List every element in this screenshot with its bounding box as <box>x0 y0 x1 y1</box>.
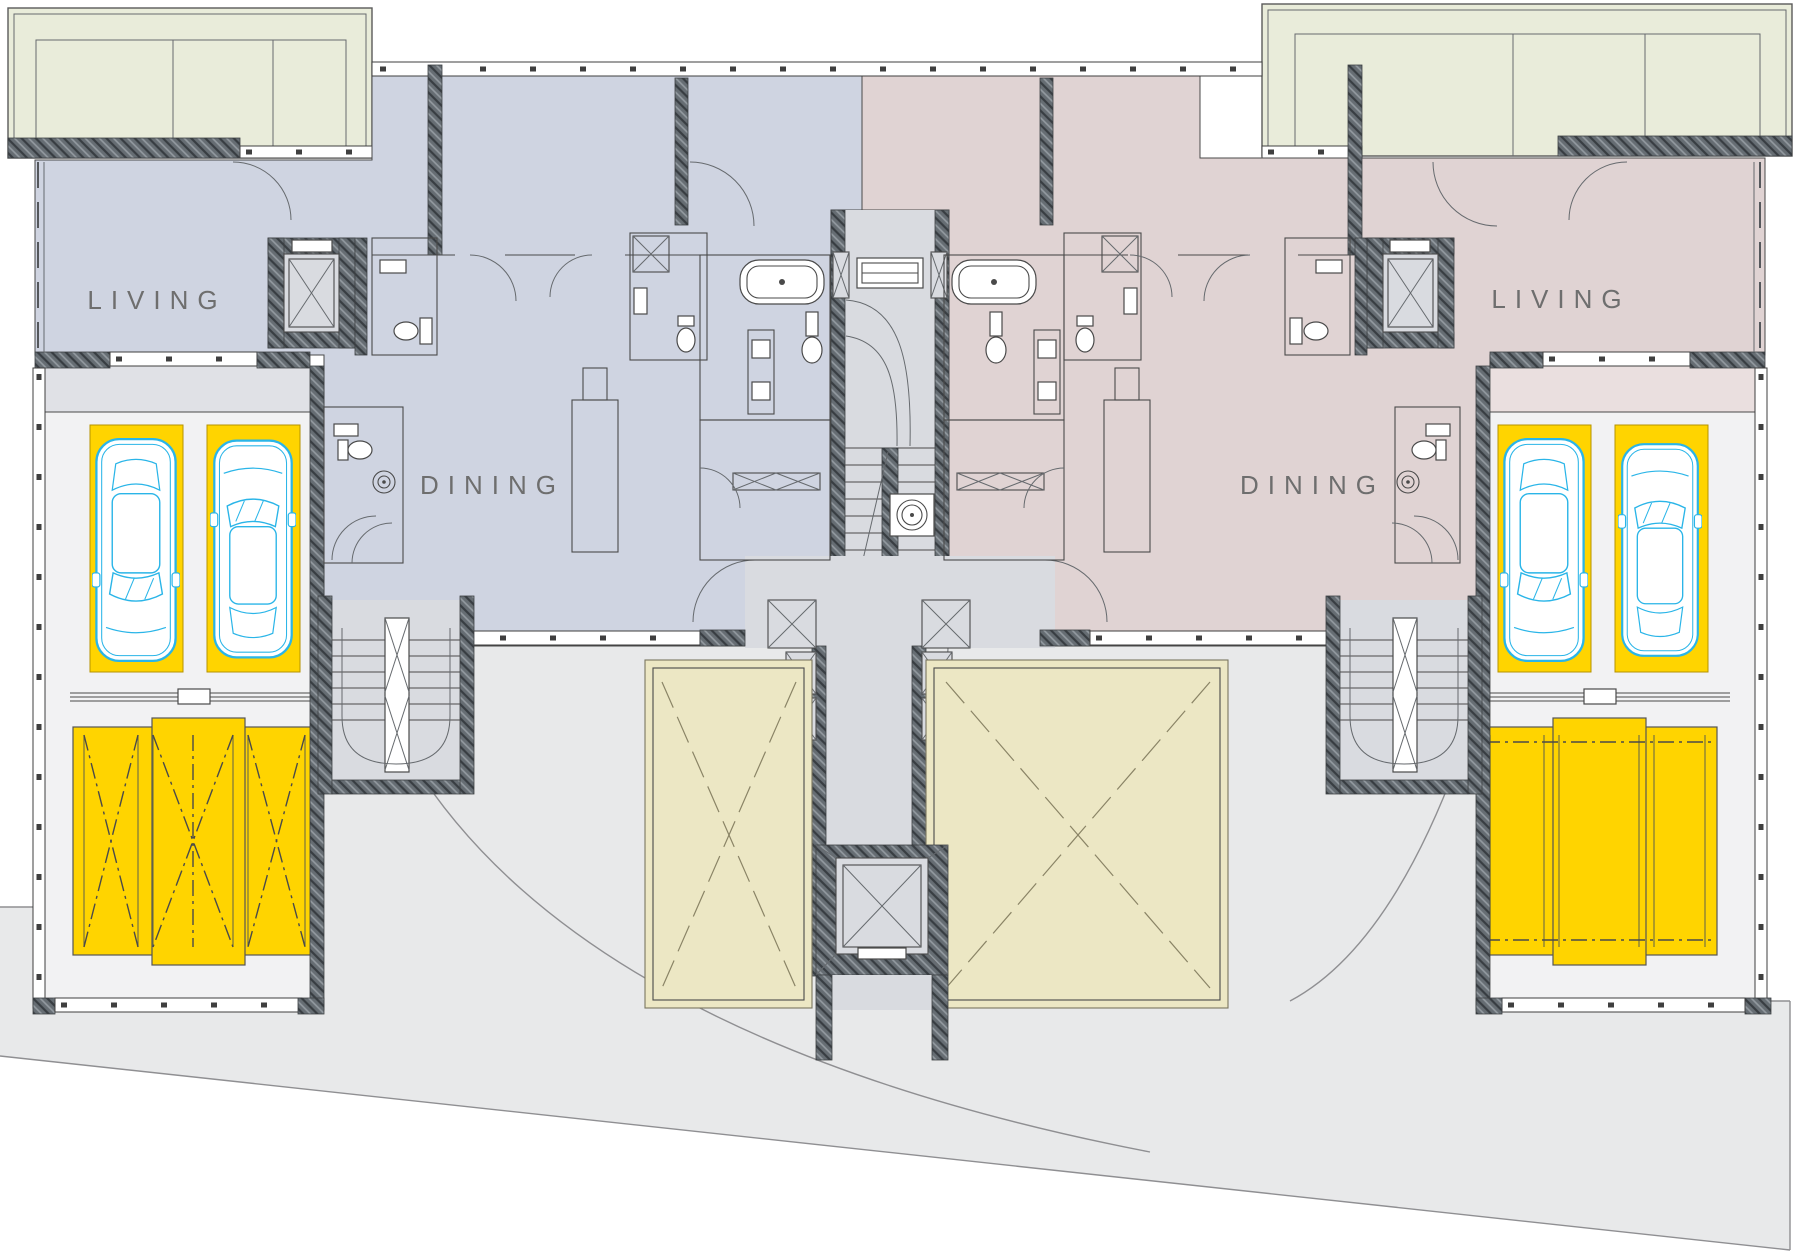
room-label-dining-left: DINING <box>420 470 560 501</box>
car-icon <box>1618 444 1702 656</box>
washer-icon <box>890 494 934 536</box>
terrace-left-wall <box>8 138 240 158</box>
elevator-left <box>268 238 367 355</box>
floor-plan: LIVING DINING DINING LIVING <box>0 0 1800 1253</box>
room-label-living-left: LIVING <box>87 285 227 316</box>
elevator-door <box>858 948 906 959</box>
storage-room-right <box>926 660 1228 1008</box>
bathtub-left <box>740 260 824 304</box>
elevator-right <box>1355 238 1454 355</box>
car-icon <box>1500 439 1588 661</box>
terrace-right <box>1262 4 1792 158</box>
garage-stair-left <box>318 596 474 794</box>
car-lift-platform-right <box>1478 718 1717 965</box>
terrace-left <box>8 8 372 158</box>
floor-plan-drawing <box>0 0 1800 1253</box>
car-lift-platform-left <box>73 718 312 965</box>
bathtub-right <box>952 260 1036 304</box>
room-label-dining-right: DINING <box>1240 470 1380 501</box>
storage-room-left <box>645 660 812 1008</box>
car-icon <box>92 439 180 661</box>
car-icon <box>210 441 296 658</box>
garage-stair-right <box>1326 596 1482 794</box>
terrace-right-wall <box>1558 136 1792 156</box>
room-label-living-right: LIVING <box>1491 284 1631 315</box>
